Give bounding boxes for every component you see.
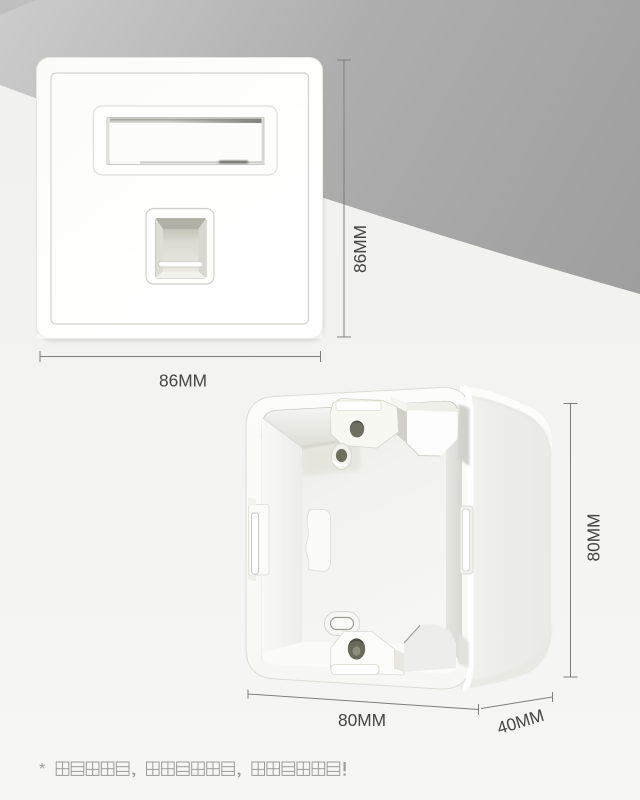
- svg-text:86MM: 86MM: [159, 371, 207, 391]
- svg-text:*: *: [39, 761, 45, 778]
- svg-text:80MM: 80MM: [584, 513, 604, 561]
- svg-text:86MM: 86MM: [350, 225, 370, 273]
- svg-text:80MM: 80MM: [338, 710, 386, 730]
